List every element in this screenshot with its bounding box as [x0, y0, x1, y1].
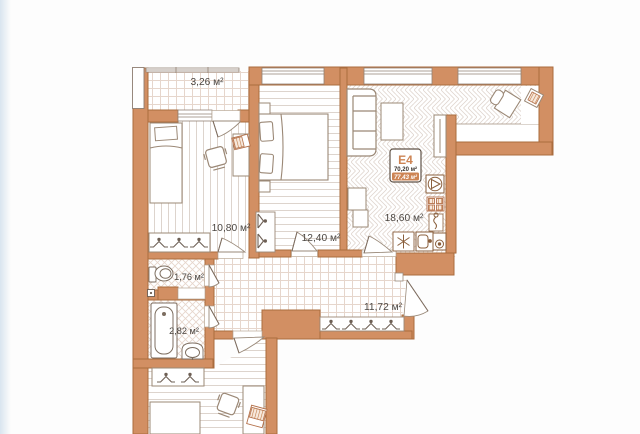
svg-text:10,80 м²: 10,80 м² [212, 223, 251, 234]
svg-text:70,20 м²: 70,20 м² [394, 166, 417, 173]
svg-text:3,26 м²: 3,26 м² [190, 77, 224, 88]
svg-text:Е4: Е4 [398, 153, 413, 167]
svg-text:2,82 м²: 2,82 м² [169, 326, 199, 336]
svg-text:11,72 м²: 11,72 м² [364, 302, 403, 313]
svg-text:1,76 м²: 1,76 м² [174, 272, 204, 282]
svg-text:18,60 м²: 18,60 м² [385, 213, 424, 224]
svg-text:77,43 м²: 77,43 м² [394, 174, 418, 181]
svg-text:12,40 м²: 12,40 м² [302, 233, 341, 244]
